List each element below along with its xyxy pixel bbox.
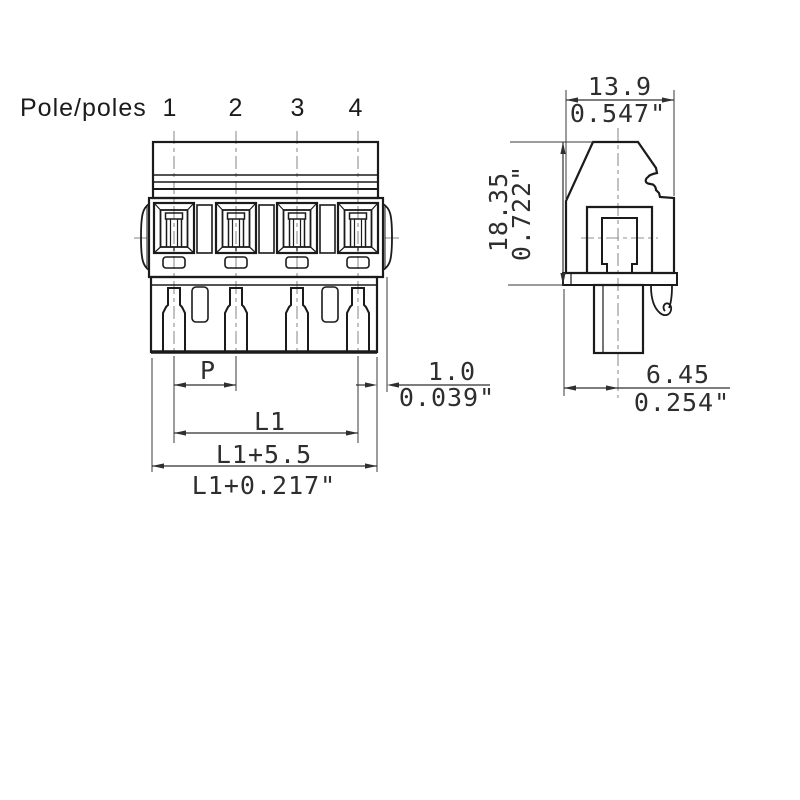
side-clamp-inner	[602, 218, 637, 273]
front-view	[141, 142, 392, 352]
side-dimensions: 13.9 0.547" 18.35 0.722" 6.45 0.254"	[484, 72, 730, 417]
arrowhead	[224, 382, 236, 387]
front-base-slot-2	[322, 287, 338, 322]
arrowhead	[365, 463, 377, 468]
height-inch-label: 0.722"	[507, 165, 536, 261]
front-left-tab	[141, 204, 149, 270]
arrowhead	[346, 430, 358, 435]
side-base-band	[563, 273, 677, 285]
arrowhead	[387, 382, 399, 387]
pin-offset-inch-label: 0.254"	[634, 388, 730, 417]
width-inch-label: 0.547"	[570, 99, 666, 128]
arrowhead	[606, 385, 618, 390]
front-separator-slot-1	[197, 205, 212, 253]
side-latch-hook	[651, 286, 671, 315]
pole-number-1: 1	[163, 94, 178, 122]
arrowhead	[560, 142, 565, 154]
front-right-tab	[383, 204, 392, 270]
arrowhead	[152, 463, 164, 468]
drawing-svg: P L1 L1+5.5 L1+0.217" 1.0 0.039" 13.9 0.…	[0, 0, 800, 800]
offset-inch-label: 0.039"	[399, 383, 495, 412]
front-base-slot-1	[192, 287, 208, 322]
pin-offset-mm-label: 6.45	[646, 360, 710, 389]
arrowhead	[564, 385, 576, 390]
l1-dimension-label: L1	[254, 407, 286, 436]
arrowhead	[560, 273, 565, 285]
arrowhead	[365, 382, 377, 387]
pole-labels: Pole/poles 1 2 3 4	[20, 94, 363, 122]
side-latch-hook-edge	[669, 286, 672, 308]
pole-label: Pole/poles	[20, 94, 147, 122]
overall-inch-label: L1+0.217"	[192, 471, 336, 500]
arrowhead	[174, 430, 186, 435]
arrowhead	[174, 382, 186, 387]
offset-mm-label: 1.0	[428, 357, 476, 386]
side-view	[563, 142, 677, 353]
front-separator-slot-3	[320, 205, 335, 253]
pole-number-3: 3	[291, 94, 306, 122]
side-clamp-outer	[587, 207, 652, 273]
front-dimensions: P L1 L1+5.5 L1+0.217" 1.0 0.039"	[152, 277, 495, 500]
front-separator-slot-2	[259, 205, 274, 253]
pitch-dimension-label: P	[200, 356, 216, 385]
overall-mm-label: L1+5.5	[216, 440, 312, 469]
pole-number-2: 2	[229, 94, 244, 122]
technical-drawing: P L1 L1+5.5 L1+0.217" 1.0 0.039" 13.9 0.…	[0, 0, 800, 800]
pole-number-4: 4	[349, 94, 364, 122]
width-mm-label: 13.9	[588, 72, 652, 101]
